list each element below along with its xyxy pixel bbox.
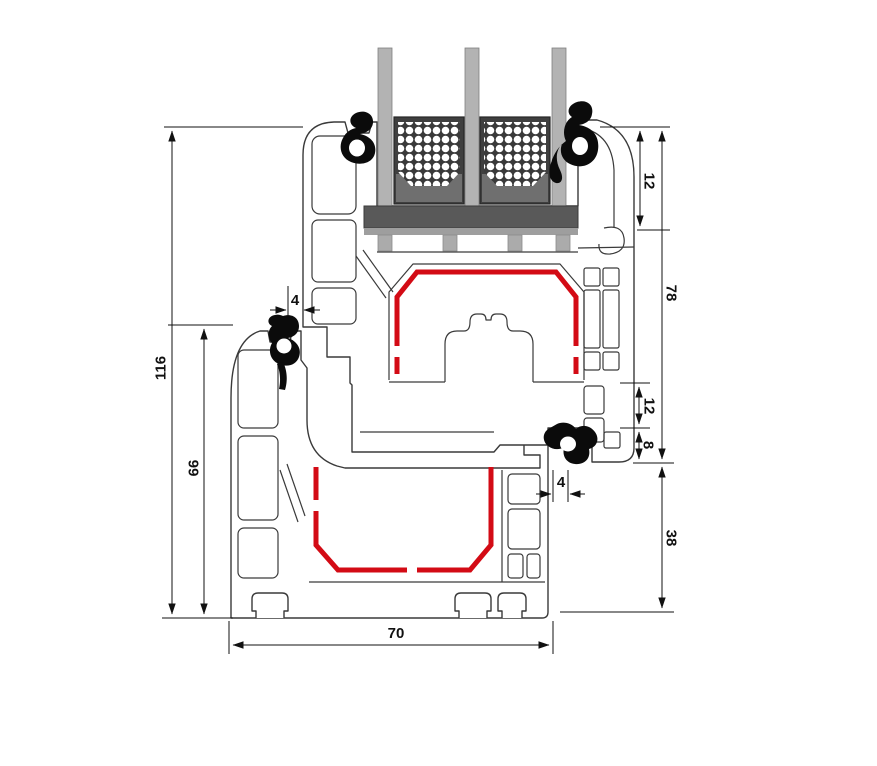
dim-12m-label: 12 — [641, 398, 658, 415]
desiccant-dots — [484, 122, 546, 186]
frame-foot-slot — [455, 593, 491, 618]
dim-8-label: 8 — [640, 441, 657, 449]
gasket-hollow — [349, 140, 365, 157]
glass-pane — [378, 48, 392, 207]
reinforcement-break — [572, 346, 580, 357]
glazing-bridge — [364, 206, 578, 228]
reinforcement-break — [312, 500, 320, 511]
dim-4r-label: 4 — [557, 474, 566, 491]
dim-70-label: 70 — [388, 625, 405, 642]
dim-78-label: 78 — [663, 285, 680, 302]
glazing-packer — [556, 235, 570, 251]
dim-4l-label: 4 — [291, 292, 300, 309]
gasket-hollow — [560, 437, 576, 452]
frame-foot-slot — [498, 593, 526, 618]
frame-foot-slot — [252, 593, 288, 618]
dim-116-label: 116 — [153, 356, 170, 380]
reinforcement-break — [407, 565, 417, 574]
reinforcement-break — [393, 346, 401, 357]
glass-pane — [465, 48, 479, 207]
glazing-seat — [364, 228, 578, 235]
glazing-packer — [508, 235, 522, 251]
cross-section-canvas: 116 66 4 12 78 12 8 4 38 — [0, 0, 877, 766]
dim-66-label: 66 — [186, 460, 203, 477]
gasket-hollow — [572, 137, 588, 155]
window-profile-drawing: 116 66 4 12 78 12 8 4 38 — [0, 0, 877, 766]
glass-pane — [552, 48, 566, 207]
gasket-hollow — [277, 339, 292, 354]
desiccant-dots — [398, 122, 460, 186]
glazing-packer — [378, 235, 392, 251]
dim-38-label: 38 — [663, 530, 680, 547]
glazing-packer — [443, 235, 457, 251]
glazing-unit — [364, 48, 578, 251]
dim-12t-label: 12 — [641, 173, 658, 190]
